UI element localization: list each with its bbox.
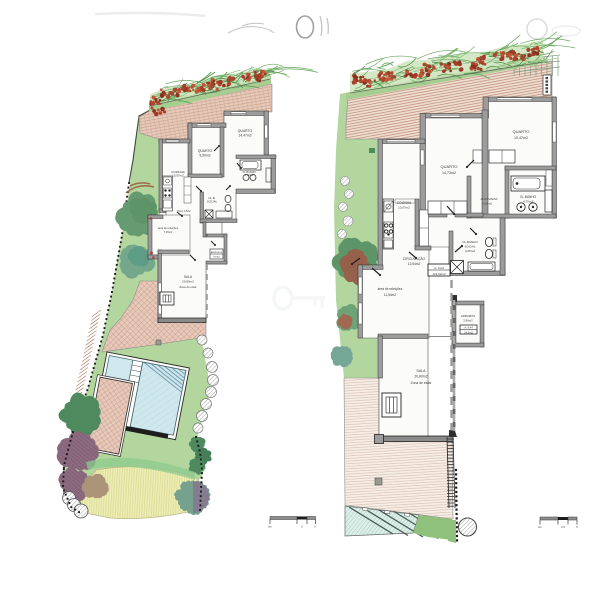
- svg-text:11,54m2: 11,54m2: [384, 293, 396, 297]
- svg-text:Zona de estar: Zona de estar: [411, 381, 433, 385]
- svg-text:2,96m2: 2,96m2: [463, 319, 473, 323]
- svg-text:CL.BANHO: CL.BANHO: [462, 240, 478, 244]
- svg-text:19,47m2: 19,47m2: [514, 136, 528, 140]
- svg-text:24,5m2: 24,5m2: [464, 331, 473, 335]
- svg-text:QUARTO: QUARTO: [238, 129, 253, 133]
- svg-text:ARRUMOS: ARRUMOS: [461, 314, 475, 318]
- svg-text:4,79m2: 4,79m2: [523, 200, 533, 204]
- svg-text:A: 9 A4: A: 9 A4: [464, 326, 473, 330]
- svg-text:ALCÔVARIA: ALCÔVARIA: [481, 196, 498, 201]
- svg-text:SOCIAL: SOCIAL: [207, 200, 218, 204]
- svg-text:13,54m2: 13,54m2: [408, 262, 421, 266]
- svg-text:área de refeições: área de refeições: [158, 226, 179, 230]
- svg-text:CIRCULAÇÃO: CIRCULAÇÃO: [403, 256, 426, 261]
- svg-text:20,80m2: 20,80m2: [414, 375, 427, 379]
- svg-text:0,5: 0,5: [561, 525, 565, 529]
- svg-text:7,15m2: 7,15m2: [164, 230, 173, 234]
- svg-text:A 9 A4: A 9 A4: [213, 256, 220, 259]
- svg-text:HALL 3,5m2: HALL 3,5m2: [177, 210, 191, 213]
- svg-text:QUARTO: QUARTO: [441, 164, 458, 169]
- svg-text:14,73m2: 14,73m2: [442, 171, 456, 175]
- svg-text:14,47m2: 14,47m2: [238, 134, 251, 138]
- svg-text:ARRUMOS: ARRUMOS: [211, 251, 223, 254]
- svg-text:121,02m2: 121,02m2: [432, 272, 446, 276]
- svg-text:13,07m2: 13,07m2: [398, 206, 410, 210]
- svg-text:4,65m2: 4,65m2: [465, 249, 475, 253]
- svg-text:SALA: SALA: [184, 275, 193, 279]
- svg-text:SOCIAL: SOCIAL: [464, 245, 475, 249]
- svg-text:COZINHA: COZINHA: [397, 201, 412, 205]
- svg-text:Zona de estar: Zona de estar: [179, 285, 196, 289]
- svg-text:13,07m2: 13,07m2: [172, 174, 184, 178]
- svg-text:área de refeições: área de refeições: [378, 287, 403, 291]
- svg-text:A: 9 A3: A: 9 A3: [434, 266, 444, 270]
- svg-text:CL.BANHO: CL.BANHO: [520, 195, 537, 199]
- svg-text:QUARTO: QUARTO: [513, 129, 530, 134]
- svg-text:QUARTO: QUARTO: [198, 149, 213, 153]
- svg-text:2m: 2m: [538, 525, 542, 529]
- svg-text:4,79m2: 4,79m2: [245, 173, 254, 177]
- svg-text:9,50m2: 9,50m2: [199, 154, 210, 158]
- svg-text:20,80m2: 20,80m2: [182, 280, 194, 284]
- svg-text:2m: 2m: [268, 525, 272, 529]
- svg-text:SALA: SALA: [416, 369, 426, 373]
- svg-text:4,29m2: 4,29m2: [482, 202, 492, 206]
